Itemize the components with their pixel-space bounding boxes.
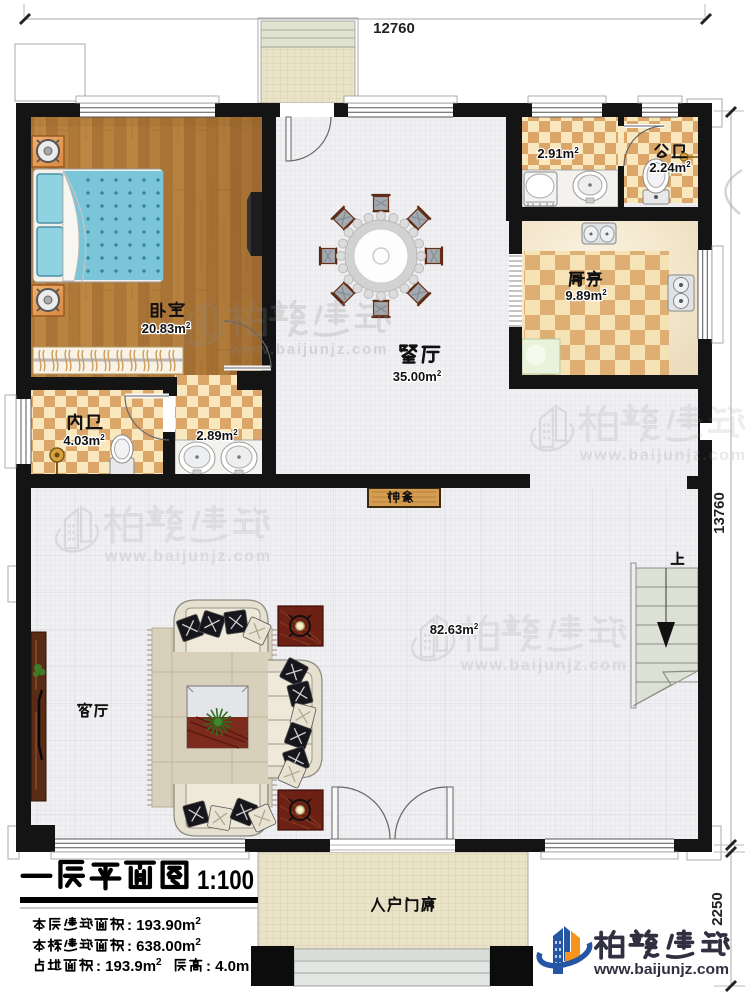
svg-text:www.baijunjz.com: www.baijunjz.com <box>579 447 747 464</box>
svg-text:9.89m2: 9.89m2 <box>565 288 607 303</box>
svg-text:: 638.00m2: : 638.00m2 <box>127 937 201 955</box>
svg-text:www.baijunjz.com: www.baijunjz.com <box>460 657 628 674</box>
svg-text:2.89m2: 2.89m2 <box>196 428 238 443</box>
svg-text:www.baijunjz.com: www.baijunjz.com <box>104 548 272 565</box>
svg-text:35.00m2: 35.00m2 <box>393 369 442 384</box>
svg-text:: 193.9m2: : 193.9m2 <box>96 957 162 975</box>
svg-text:2250: 2250 <box>709 892 726 925</box>
svg-text:2.24m2: 2.24m2 <box>649 160 691 175</box>
svg-text:13760: 13760 <box>711 492 728 534</box>
svg-text:2.91m2: 2.91m2 <box>537 146 579 161</box>
svg-text:www.baijunjz.com: www.baijunjz.com <box>229 341 388 358</box>
svg-text:82.63m2: 82.63m2 <box>430 622 479 637</box>
svg-text:4.03m2: 4.03m2 <box>63 433 105 448</box>
svg-text:www.baijunjz.com: www.baijunjz.com <box>593 961 729 978</box>
svg-text:: 4.0m: : 4.0m <box>206 958 249 975</box>
svg-text:: 193.90m2: : 193.90m2 <box>127 916 201 934</box>
svg-text:12760: 12760 <box>373 20 415 37</box>
svg-text:20.83m2: 20.83m2 <box>142 321 191 336</box>
svg-text:1:100: 1:100 <box>197 865 254 895</box>
